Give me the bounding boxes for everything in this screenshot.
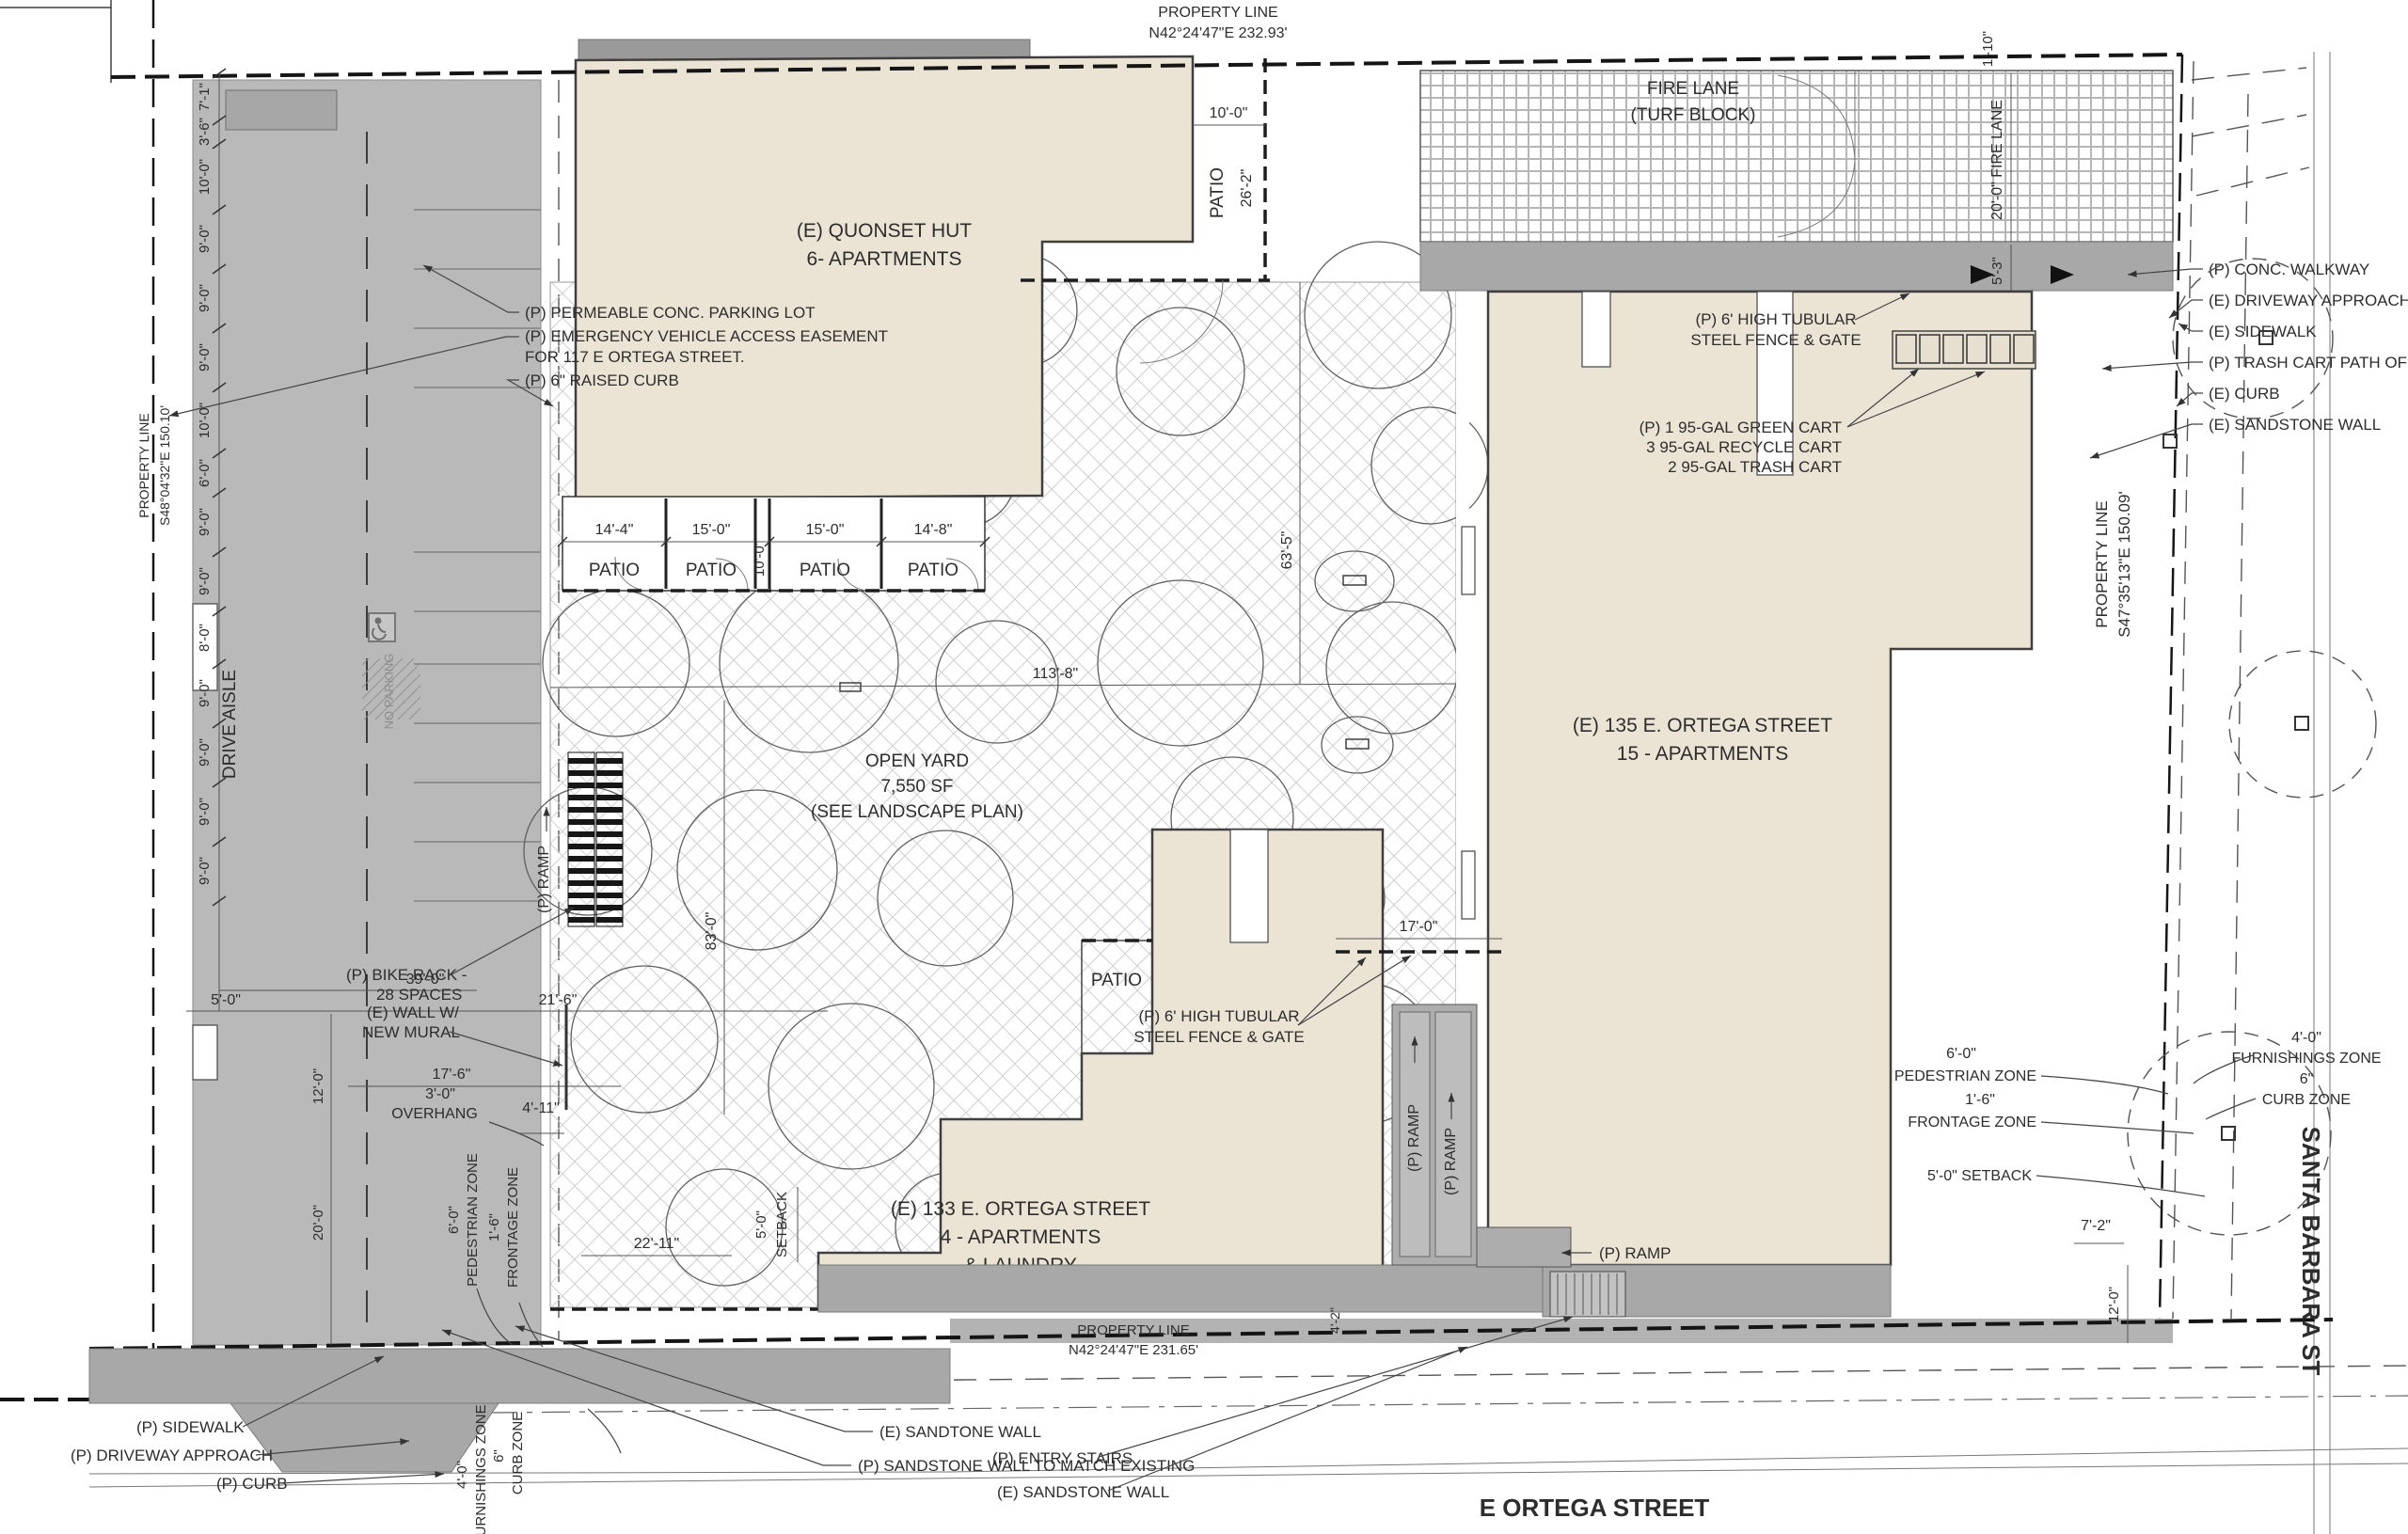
dim-7-2: 7'-2" xyxy=(2081,1218,2111,1234)
note-sidewalk-p: (P) SIDEWALK xyxy=(136,1418,245,1436)
quonset-label-1: (E) QUONSET HUT xyxy=(797,220,972,242)
note-sandtone: (E) SANDTONE WALL xyxy=(879,1423,1041,1441)
zone-ped-dim-b: 6'-0" xyxy=(446,1206,462,1234)
fire-lane-label-1: FIRE LANE xyxy=(1647,79,1739,99)
pl-bottom-label: PROPERTY LINE xyxy=(1077,1322,1190,1338)
fence-label-mid-2: STEEL FENCE & GATE xyxy=(1133,1028,1304,1046)
b133-label-2: 4 - APARTMENTS xyxy=(941,1226,1101,1248)
quonset-patio-row: 14'-4" 15'-0" 15'-0" 14'-8" 10'-0" PATIO… xyxy=(558,497,990,591)
dim-83-0: 83'-0" xyxy=(704,912,720,951)
patio-dim-10: 10'-0" xyxy=(752,541,768,577)
zone-curb-b: CURB ZONE xyxy=(510,1412,526,1494)
chain-dim: 9'-0" xyxy=(197,284,213,312)
trash-cart-pad xyxy=(1893,331,2036,369)
dim-63-5: 63'-5" xyxy=(1279,531,1295,570)
site-plan-page: NO PARKING DRIVE AISLE OPEN YARD 7,550 S… xyxy=(0,0,2408,1534)
chain-dim: 7'-1" xyxy=(197,83,213,111)
carts-label-1: (P) 1 95-GAL GREEN CART xyxy=(1640,419,1842,436)
zone-ped-b: PEDESTRIAN ZONE xyxy=(465,1153,481,1287)
pl-right-bearing: S47°35'13"E 150.09' xyxy=(2115,491,2133,637)
dim-fire-lane-20: 20'-0" FIRE LANE xyxy=(1989,100,2005,220)
note-raised-curb: (P) 6" RAISED CURB xyxy=(525,372,679,389)
mural-label-1: (E) WALL W/ xyxy=(367,1004,459,1021)
chain-dim: 6'-0" xyxy=(197,459,213,487)
carts-label-3: 2 95-GAL TRASH CART xyxy=(1668,458,1842,476)
dim-21-6: 21'-6" xyxy=(539,992,578,1008)
zone-curb-r: CURB ZONE xyxy=(2262,1092,2351,1108)
fire-lane-label-2: (TURF BLOCK) xyxy=(1631,105,1756,125)
dim-12-0: 12'-0" xyxy=(310,1068,326,1104)
note-curb-p: (P) CURB xyxy=(216,1475,288,1493)
dim-113-8: 113'-8" xyxy=(1033,666,1078,682)
note-evae-2: FOR 117 E ORTEGA STREET. xyxy=(525,348,745,366)
ramp-label-vert-2: (P) RAMP xyxy=(1443,1128,1459,1195)
dim-17-6: 17'-6" xyxy=(433,1067,471,1083)
fence-label-top-1: (P) 6' HIGH TUBULAR xyxy=(1695,310,1856,328)
note-evae-1: (P) EMERGENCY VEHICLE ACCESS EASEMENT xyxy=(525,327,888,345)
accessible-parking-icon xyxy=(369,613,395,641)
quonset-label-2: 6- APARTMENTS xyxy=(807,248,962,270)
chain-dim: 9'-0" xyxy=(197,738,213,767)
ne-patio-label: PATIO xyxy=(1208,167,1228,218)
street-name-right: SANTA BARBARA ST xyxy=(2297,1127,2325,1376)
patio-dim-2: 15'-0" xyxy=(692,522,731,538)
zone-curb-dim-r: 6" xyxy=(2300,1071,2314,1087)
b133-label-1: (E) 133 E. ORTEGA STREET xyxy=(891,1198,1150,1220)
ne-patio-dim-26-2: 26'-2" xyxy=(1239,169,1255,208)
street-name-bottom: E ORTEGA STREET xyxy=(1480,1494,1710,1522)
zone-furn-dim-r: 4'-0" xyxy=(2291,1030,2321,1046)
chain-dim: 9'-0" xyxy=(197,679,213,707)
no-parking-label: NO PARKING xyxy=(382,654,396,730)
dim-overhang-1: 3'-0" xyxy=(425,1086,455,1102)
zone-ped-r: PEDESTRIAN ZONE xyxy=(1894,1068,2036,1084)
dim-5-0: 5'-0" xyxy=(211,992,241,1008)
ramp-label-vert-1: (P) RAMP xyxy=(1406,1104,1422,1172)
carts-label-2: 3 95-GAL RECYCLE CART xyxy=(1646,438,1842,456)
note-trash-path: (P) TRASH CART PATH OF xyxy=(2209,354,2407,372)
dim-17-0: 17'-0" xyxy=(1400,919,1438,935)
zone-curb-dim-b: 6" xyxy=(491,1449,507,1463)
open-yard-label-1: OPEN YARD xyxy=(865,751,969,771)
chain-dim: 9'-0" xyxy=(197,798,213,826)
note-curb-e: (E) CURB xyxy=(2209,385,2280,403)
patio-dim-1: 14'-4" xyxy=(595,522,634,538)
zone-front-r: FRONTAGE ZONE xyxy=(1908,1115,2036,1131)
pl-right-label: PROPERTY LINE xyxy=(2093,500,2111,627)
chain-dim: 9'-0" xyxy=(197,508,213,536)
chain-dim: 9'-0" xyxy=(197,567,213,595)
chain-dim: 3'-6" xyxy=(197,118,213,146)
zone-furn-r: FURNISHINGS ZONE xyxy=(2231,1051,2381,1067)
pl-top-bearing: N42°24'47"E 232.93' xyxy=(1149,25,1287,41)
dim-4-11: 4'-11" xyxy=(522,1100,560,1116)
dim-4-2: 4'-2" xyxy=(1327,1307,1342,1334)
zone-setback-r: 5'-0" SETBACK xyxy=(1927,1168,2032,1184)
zone-ped-dim-r: 6'-0" xyxy=(1946,1046,1976,1062)
note-driveway-e: (E) DRIVEWAY APPROACH xyxy=(2209,292,2408,309)
dim-12-right: 12'-0" xyxy=(2106,1287,2122,1322)
pl-top-label: PROPERTY LINE xyxy=(1158,5,1277,21)
dim-1-10: 1'-10" xyxy=(1980,31,1996,67)
pl-bottom-bearing: N42°24'47"E 231.65' xyxy=(1069,1342,1198,1358)
pl-left-label: PROPERTY LINE xyxy=(136,413,151,518)
patio-dim-4: 14'-8" xyxy=(914,522,953,538)
chain-dim: 8'-0" xyxy=(197,624,213,652)
open-yard-label-2: 7,550 SF xyxy=(880,777,953,797)
dim-20-0: 20'-0" xyxy=(310,1205,326,1241)
drive-aisle-label: DRIVE AISLE xyxy=(220,670,240,779)
entry-stairs xyxy=(1550,1272,1625,1317)
patio-label-1: PATIO xyxy=(589,561,640,580)
setback-dim-mid: 5'-0" xyxy=(753,1210,769,1239)
chain-dim: 9'-0" xyxy=(197,343,213,372)
mural-label-2: NEW MURAL xyxy=(362,1023,460,1041)
zone-furn-dim-b: 4'-0" xyxy=(454,1461,470,1489)
zone-front-dim-b: 1'-6" xyxy=(486,1213,502,1241)
ne-patio-dim-10: 10'-0" xyxy=(1210,105,1248,121)
fence-label-top-2: STEEL FENCE & GATE xyxy=(1690,331,1861,349)
patio-label-3: PATIO xyxy=(800,561,850,580)
dim-22-11: 22'-11" xyxy=(634,1236,679,1252)
zone-furn-b: FURNISHINGS ZONE xyxy=(473,1404,489,1534)
site-plan-drawing: NO PARKING DRIVE AISLE OPEN YARD 7,550 S… xyxy=(0,0,2408,1534)
patio-label-4: PATIO xyxy=(908,561,958,580)
chain-dim: 9'-0" xyxy=(197,225,213,253)
dim-5-3: 5'-3" xyxy=(1989,257,2005,285)
note-sandstone-e: (E) SANDSTONE WALL xyxy=(2209,416,2381,434)
dim-overhang-2: OVERHANG xyxy=(391,1106,478,1122)
mid-patio-label: PATIO xyxy=(1091,971,1142,990)
bike-rack-label-1: (P) BIKE RACK - xyxy=(346,966,467,984)
note-conc-walkway: (P) CONC. WALKWAY xyxy=(2209,261,2369,278)
chain-dim: 9'-0" xyxy=(197,857,213,885)
patio-label-2: PATIO xyxy=(686,561,737,580)
b135-label-2: 15 - APARTMENTS xyxy=(1617,743,1788,765)
chain-dim: 10'-0" xyxy=(197,159,213,195)
fence-label-mid-1: (P) 6' HIGH TUBULAR xyxy=(1138,1007,1299,1025)
ramp-label-horiz: (P) RAMP xyxy=(1599,1244,1671,1262)
note-entry-stairs: (P) ENTRY STAIRS xyxy=(992,1449,1133,1467)
setback-word-mid: SETBACK xyxy=(774,1192,790,1257)
note-sandstone-e2: (E) SANDSTONE WALL xyxy=(997,1483,1169,1501)
zone-front-b: FRONTAGE ZONE xyxy=(505,1167,521,1288)
open-yard-label-3: (SEE LANDSCAPE PLAN) xyxy=(811,802,1023,822)
bike-rack-label-2: 28 SPACES xyxy=(376,986,462,1004)
ramp-label-bike: (P) RAMP xyxy=(536,846,552,913)
note-driveway-p: (P) DRIVEWAY APPROACH xyxy=(71,1447,273,1464)
patio-dim-3: 15'-0" xyxy=(806,522,845,538)
b135-label-1: (E) 135 E. ORTEGA STREET xyxy=(1573,715,1832,736)
pl-left-bearing: S48°04'32"E 150.10' xyxy=(157,405,172,526)
zone-front-dim-r: 1'-6" xyxy=(1965,1092,1995,1108)
note-permeable: (P) PERMEABLE CONC. PARKING LOT xyxy=(525,304,816,322)
fire-lane-turf: FIRE LANE (TURF BLOCK) 1'-10" 20'-0" FIR… xyxy=(1420,31,2173,292)
